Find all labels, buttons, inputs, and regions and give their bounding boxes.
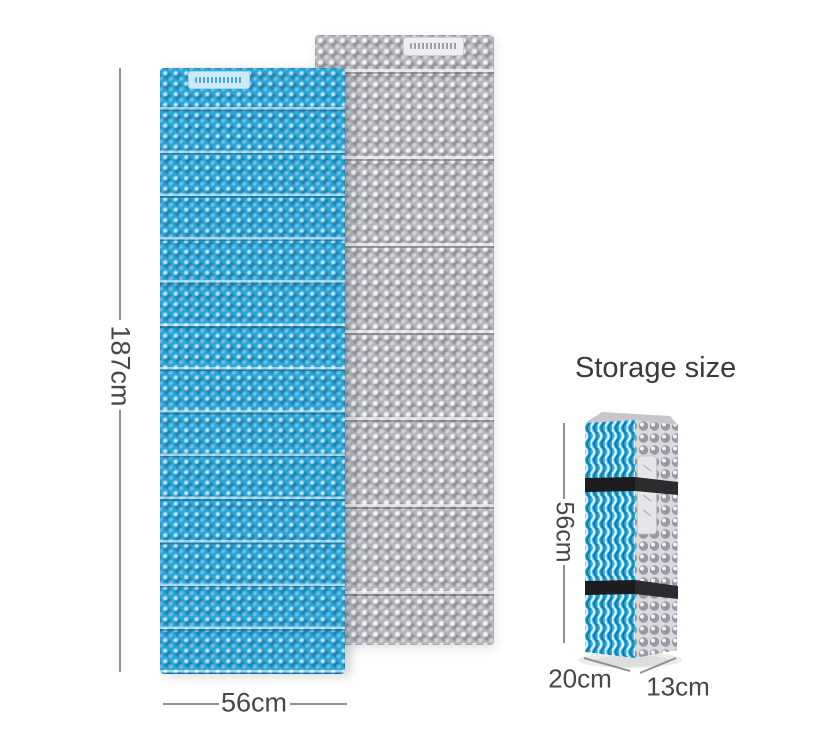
storage-height-line-bottom (563, 565, 565, 643)
height-dimension-line-bottom (119, 410, 121, 672)
storage-height-label: 56cm (550, 501, 579, 562)
brand-label-text-blur (195, 77, 243, 83)
mat-height-label: 187cm (105, 325, 136, 406)
storage-width-label: 13cm (646, 672, 710, 703)
storage-size-title: Storage size (575, 352, 736, 385)
folded-mat-front-face-blue (585, 420, 635, 658)
storage-height-line-top (563, 423, 565, 499)
height-dimension-line-top (119, 68, 121, 320)
storage-depth-label: 20cm (548, 664, 612, 695)
mat-width-label: 56cm (221, 688, 287, 719)
strap-bottom-front (585, 580, 635, 595)
strap-top-front (585, 477, 635, 492)
product-dimension-diagram: 187cm 56cm Storage size (0, 0, 840, 740)
brand-label-patch-gray (403, 37, 464, 56)
blue-mat-unfolded (160, 68, 345, 674)
width-dimension-line-left (163, 703, 219, 705)
brand-label-patch-blue (188, 71, 250, 89)
brand-label-text-blur (410, 43, 457, 49)
width-dimension-line-right (290, 703, 347, 705)
